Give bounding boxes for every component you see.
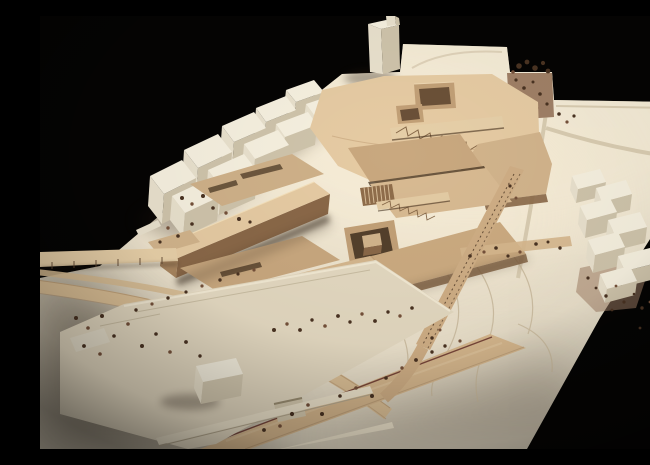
model-photograph: [40, 16, 650, 449]
photo-canvas: Bird's-eye photograph of a wooden archit…: [40, 16, 650, 449]
vignette: [40, 16, 650, 449]
